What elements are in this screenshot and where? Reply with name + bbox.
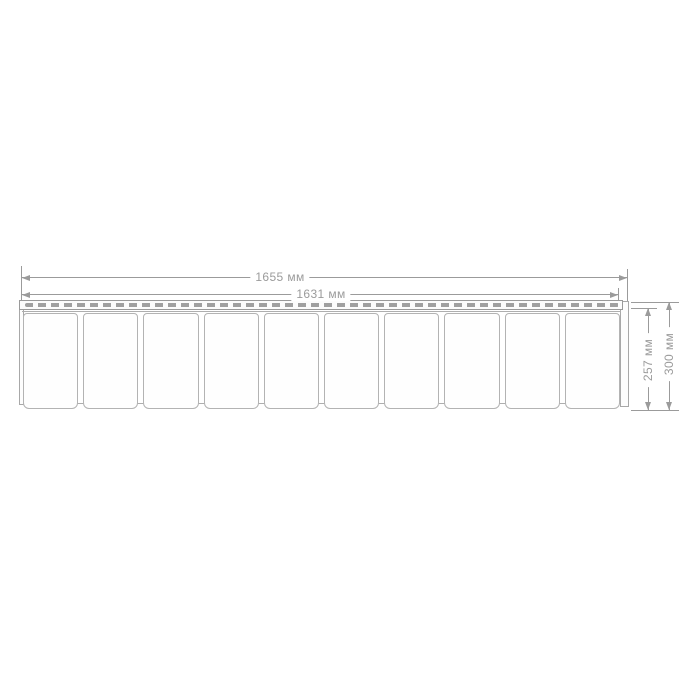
dim-label-width-nail-strip: 1631 мм [291,287,350,301]
nail-slots [25,303,619,307]
nail-hem-strip [19,300,623,310]
arrow-right-icon [610,292,618,298]
arrow-down-icon [645,402,651,410]
drawing-canvas: 1655 мм 1631 мм 257 мм 300 мм [0,0,700,700]
arrow-right-icon [619,275,627,281]
dim-label-width-overall: 1655 мм [250,270,309,284]
tile [264,313,319,409]
tile [324,313,379,409]
tile [505,313,560,409]
tile [23,313,78,409]
tile [143,313,198,409]
arrow-down-icon [666,402,672,410]
tile [565,313,620,409]
tile [204,313,259,409]
panel-top-rail [22,311,621,312]
dimension-line [22,277,627,278]
extension-line [631,410,679,411]
panel-right-lock-edge [620,301,629,407]
extension-line [631,308,657,309]
dim-label-height-panel: 257 мм [641,333,655,387]
arrow-up-icon [645,308,651,316]
dim-label-height-overall: 300 мм [662,327,676,381]
tile [83,313,138,409]
extension-line [627,269,628,301]
tile [444,313,499,409]
arrow-left-icon [22,292,30,298]
arrow-up-icon [666,302,672,310]
tiles-row [23,313,620,409]
tile [384,313,439,409]
arrow-left-icon [22,275,30,281]
